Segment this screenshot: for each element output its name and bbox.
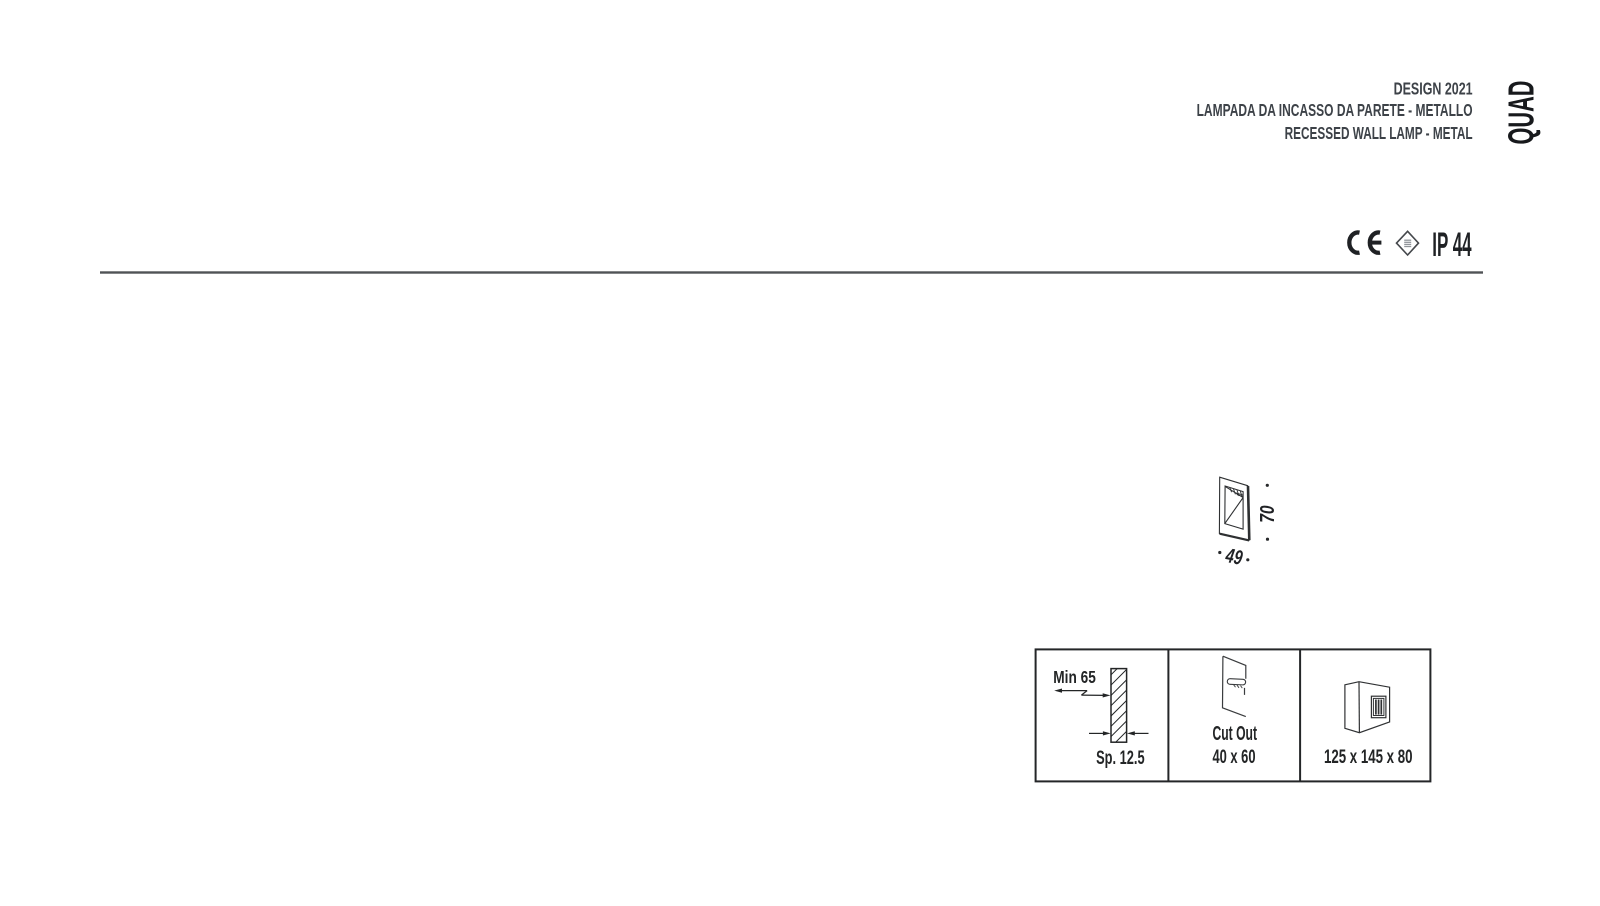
svg-text:70: 70 xyxy=(1257,505,1279,522)
svg-text:125 x 145 x 80: 125 x 145 x 80 xyxy=(1324,747,1413,768)
svg-text:40 x 60: 40 x 60 xyxy=(1213,747,1256,768)
svg-text:Cut Out: Cut Out xyxy=(1213,723,1258,745)
svg-text:Sp. 12.5: Sp. 12.5 xyxy=(1096,747,1145,769)
svg-text:QUAD: QUAD xyxy=(1501,81,1542,145)
svg-text:IP 44: IP 44 xyxy=(1432,226,1471,264)
svg-text:LAMPADA DA INCASSO DA PARETE -: LAMPADA DA INCASSO DA PARETE - METALLO xyxy=(1197,100,1473,120)
svg-text:Min 65: Min 65 xyxy=(1053,667,1096,687)
svg-text:DESIGN 2021: DESIGN 2021 xyxy=(1394,79,1473,99)
svg-text:RECESSED WALL LAMP - METAL: RECESSED WALL LAMP - METAL xyxy=(1285,123,1473,143)
